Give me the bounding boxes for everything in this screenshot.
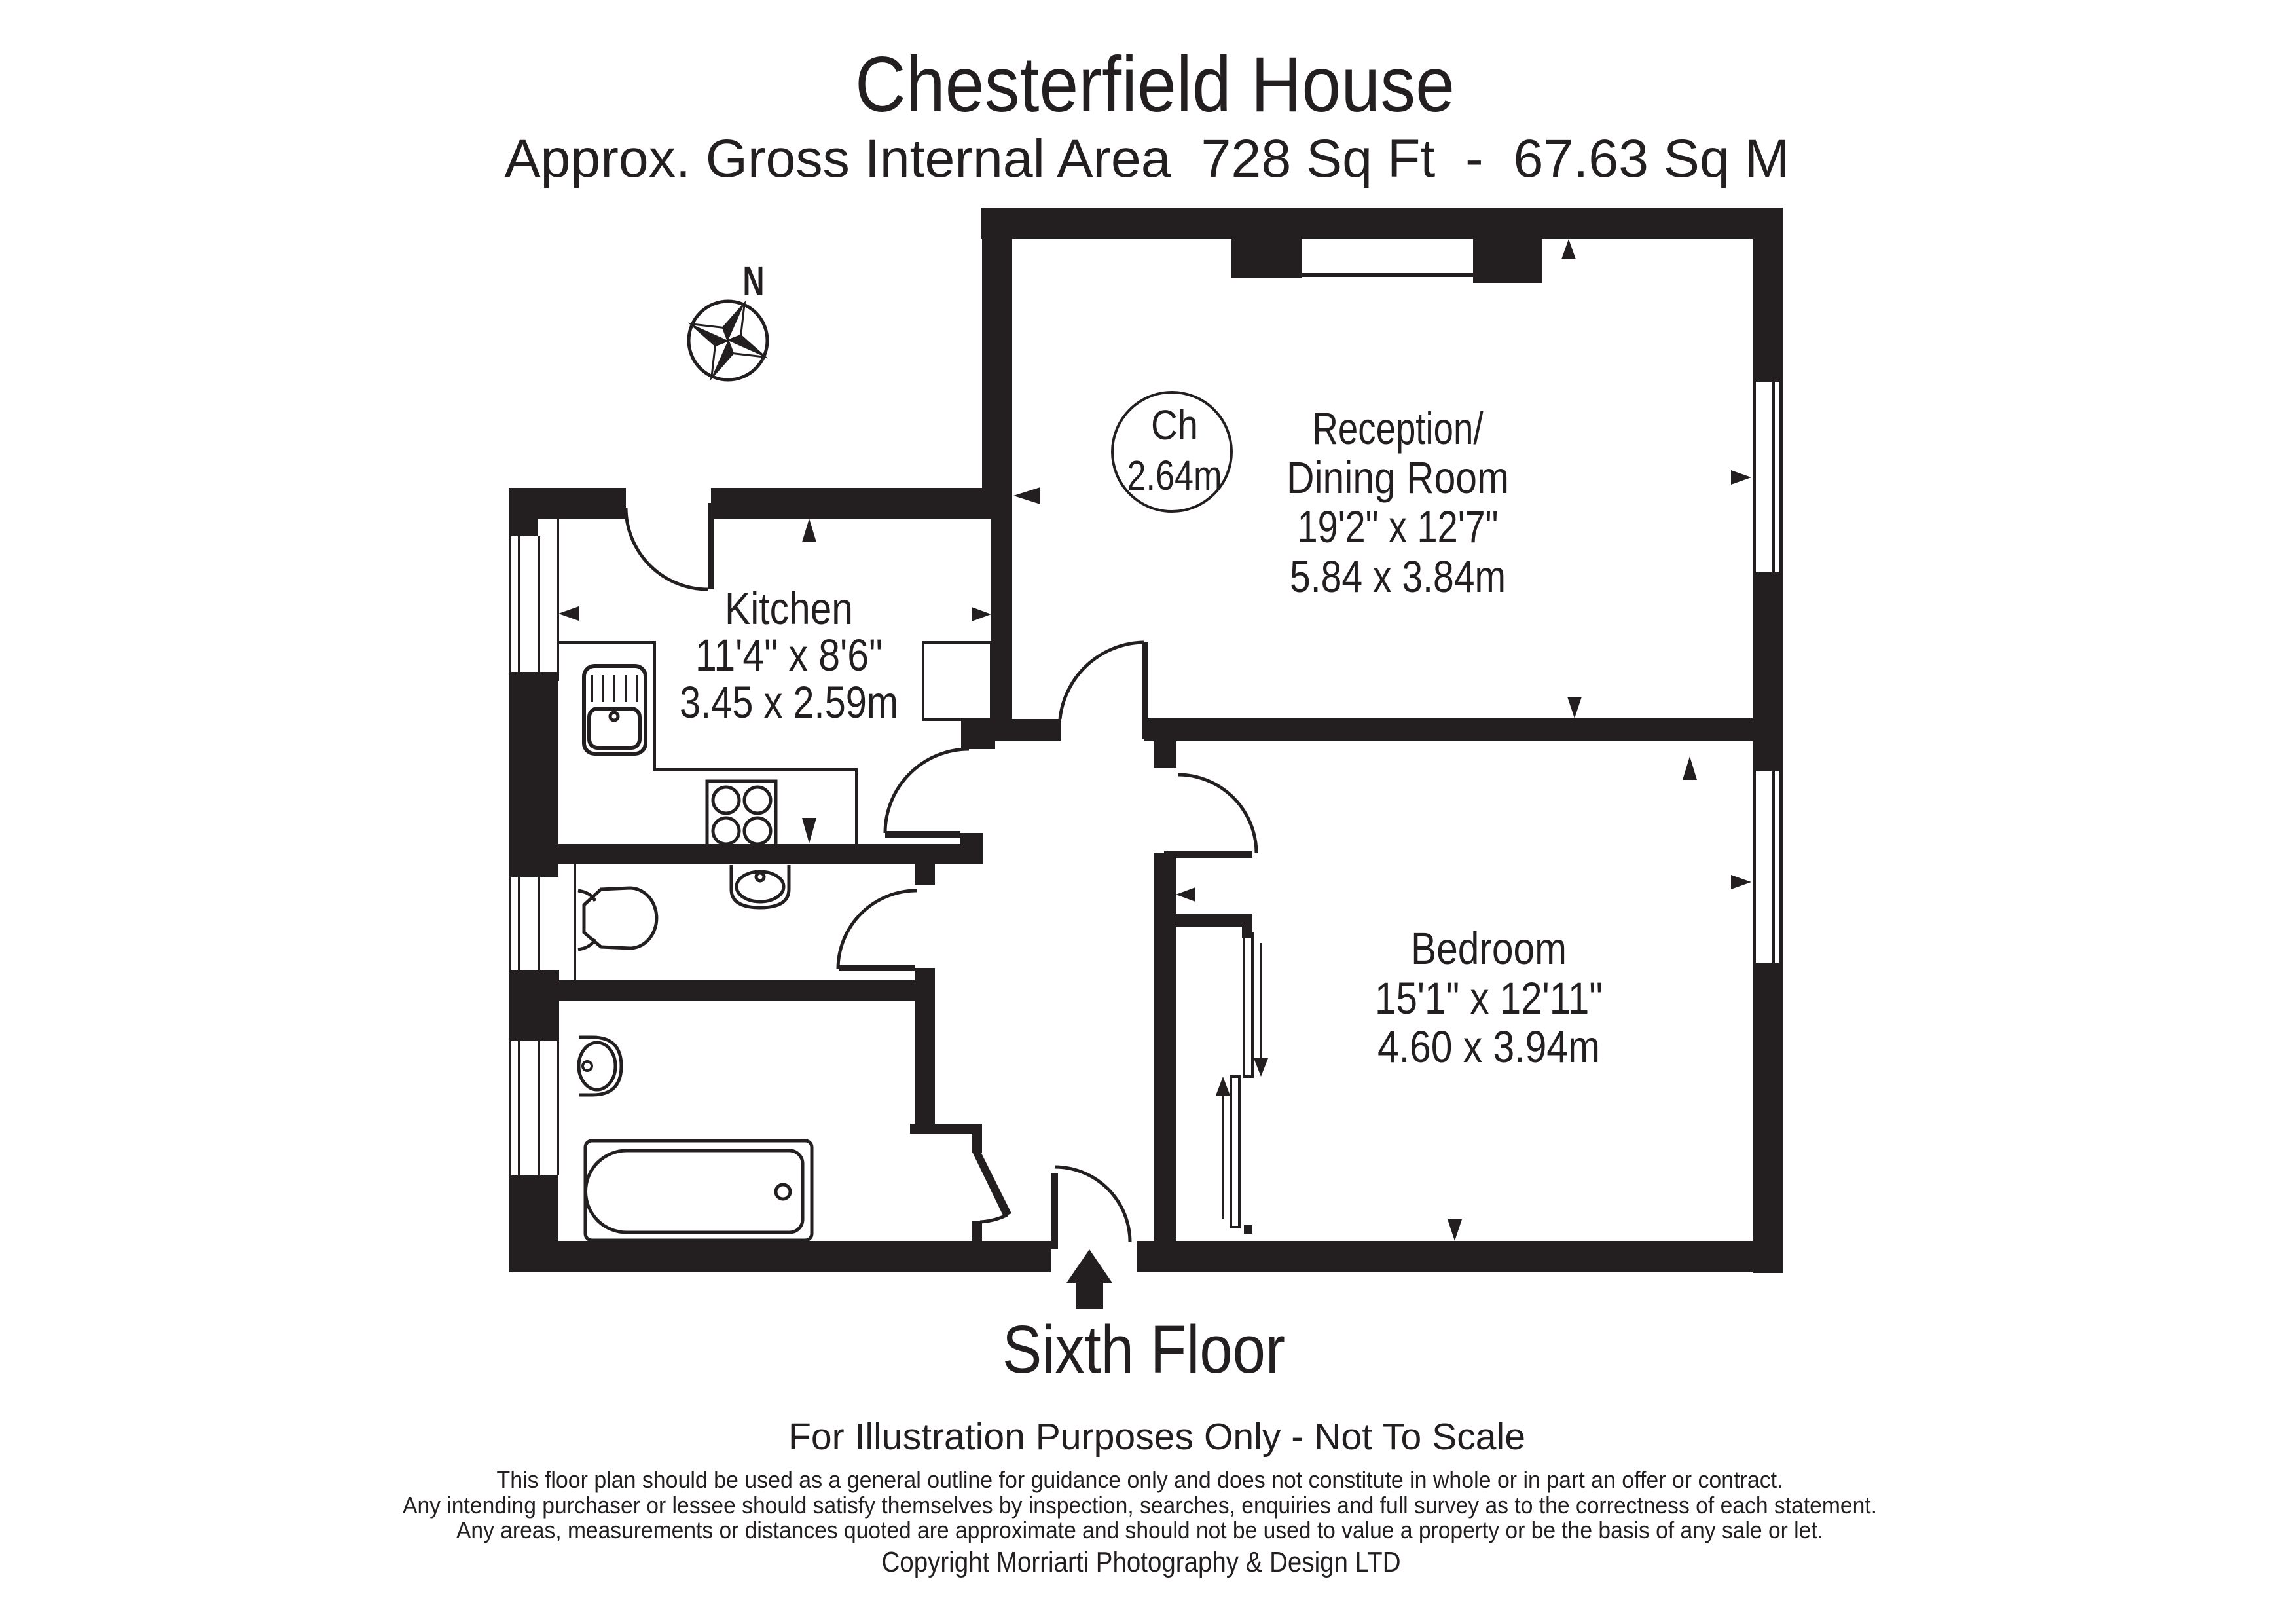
svg-text:For Illustration Purposes Only: For Illustration Purposes Only - Not To … bbox=[788, 1416, 1525, 1458]
svg-text:N: N bbox=[743, 257, 765, 304]
svg-text:Any intending purchaser or les: Any intending purchaser or lessee should… bbox=[403, 1492, 1877, 1519]
svg-text:3.45 x 2.59m: 3.45 x 2.59m bbox=[680, 677, 898, 728]
svg-text:Kitchen: Kitchen bbox=[725, 583, 853, 634]
svg-text:Reception/: Reception/ bbox=[1313, 403, 1484, 454]
svg-text:15'1" x 12'11": 15'1" x 12'11" bbox=[1375, 973, 1603, 1024]
svg-text:Dining Room: Dining Room bbox=[1286, 452, 1509, 503]
svg-text:5.84 x 3.84m: 5.84 x 3.84m bbox=[1290, 551, 1506, 602]
svg-text:4.60 x 3.94m: 4.60 x 3.94m bbox=[1377, 1022, 1600, 1072]
svg-text:19'2" x 12'7": 19'2" x 12'7" bbox=[1298, 502, 1499, 552]
svg-text:2.64m: 2.64m bbox=[1127, 452, 1222, 499]
svg-text:Approx. Gross Internal Area 7: Approx. Gross Internal Area 728 Sq Ft - … bbox=[505, 129, 1790, 189]
svg-text:Ch: Ch bbox=[1151, 401, 1198, 449]
svg-text:Sixth Floor: Sixth Floor bbox=[1002, 1312, 1285, 1387]
svg-text:Any areas, measurements or dis: Any areas, measurements or distances quo… bbox=[456, 1517, 1823, 1543]
svg-text:Bedroom: Bedroom bbox=[1411, 923, 1567, 974]
svg-text:Chesterfield House: Chesterfield House bbox=[855, 41, 1455, 128]
svg-text:11'4" x 8'6": 11'4" x 8'6" bbox=[695, 630, 883, 680]
svg-text:This floor plan should be used: This floor plan should be used as a gene… bbox=[497, 1466, 1783, 1493]
svg-text:Copyright Morriarti Photograph: Copyright Morriarti Photography & Design… bbox=[882, 1546, 1401, 1578]
